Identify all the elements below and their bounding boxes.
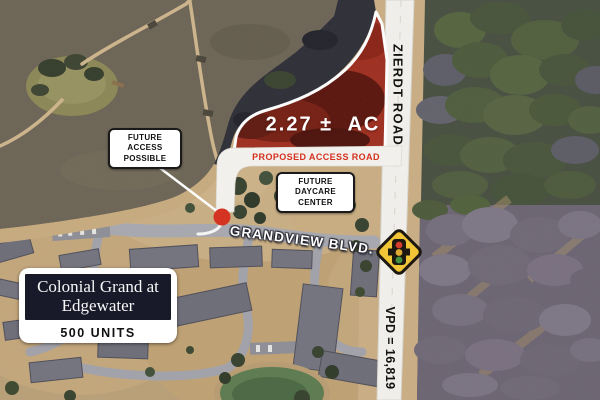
future-access-callout: FUTURE ACCESS POSSIBLE <box>108 128 182 169</box>
property-name-line1: Colonial Grand at <box>27 277 169 296</box>
aerial-site-map: 2.27 ± AC ZIERDT ROAD VPD = 16,819 PROPO… <box>0 0 600 400</box>
property-name-line2: Edgewater <box>27 296 169 315</box>
property-name: Colonial Grand at Edgewater <box>23 272 173 322</box>
property-units: 500 UNITS <box>23 322 173 343</box>
future-daycare-callout: FUTURE DAYCARE CENTER <box>276 172 355 213</box>
property-card: Colonial Grand at Edgewater 500 UNITS <box>19 268 177 343</box>
